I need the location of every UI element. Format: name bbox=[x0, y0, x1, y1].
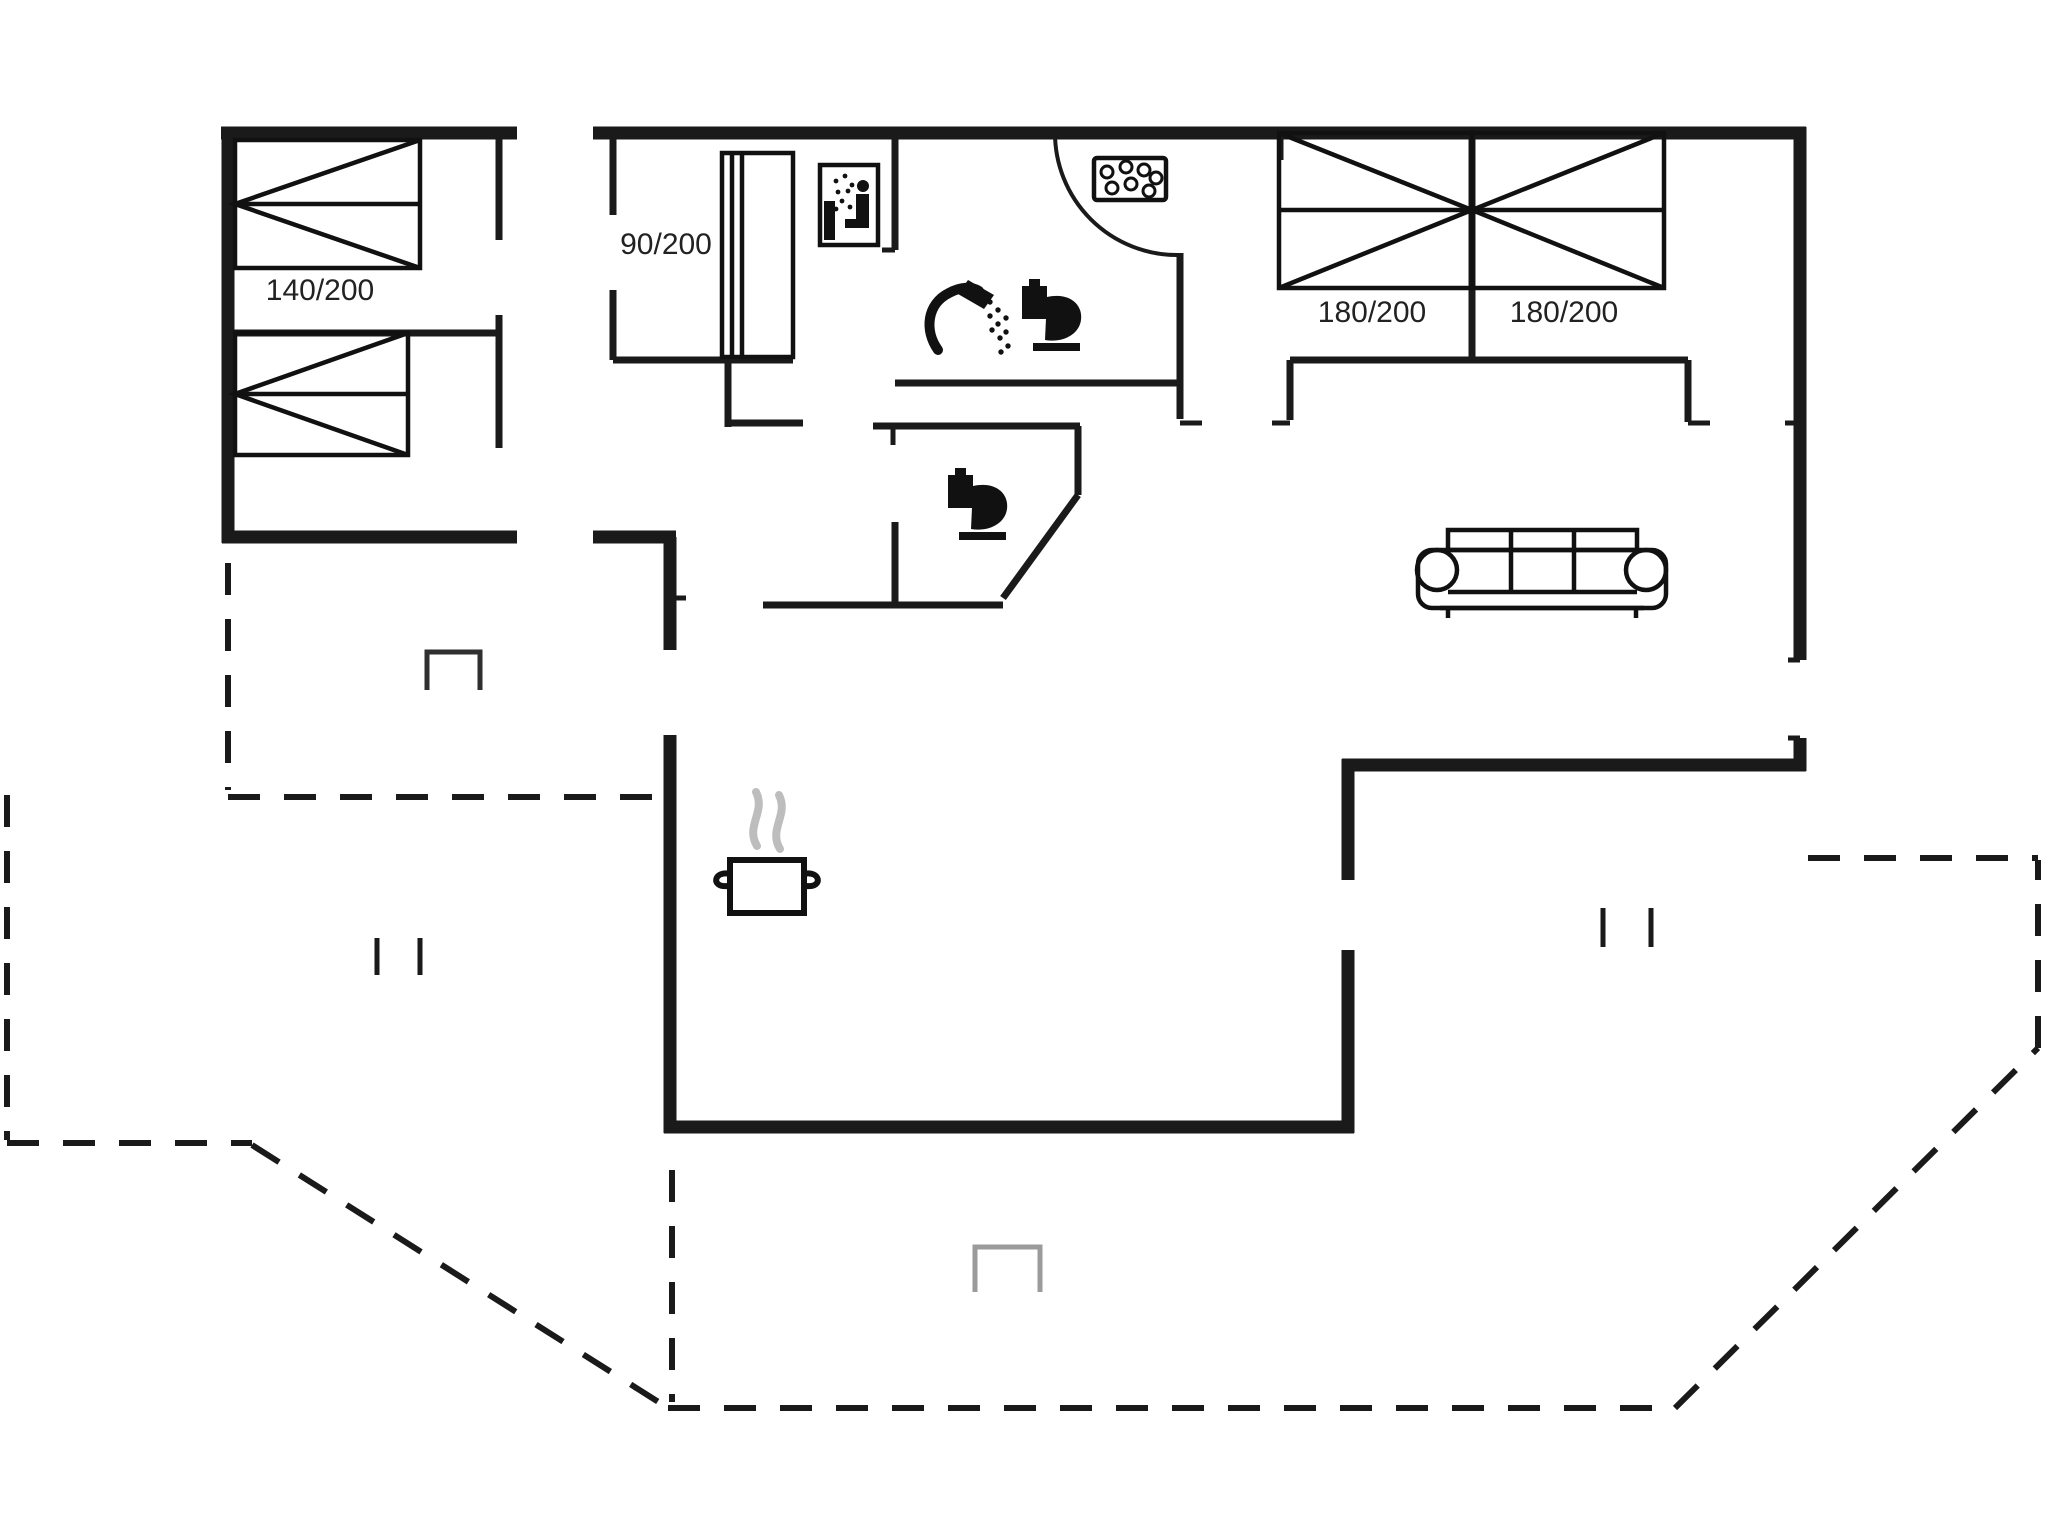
steam-icon bbox=[753, 792, 782, 849]
cooking-pot-icon bbox=[716, 860, 818, 913]
floor-plan-page: 140/200 90/200 180/200 180/200 bbox=[0, 0, 2048, 1536]
terrace-marker-left bbox=[427, 652, 480, 690]
terrace-marker-bottom bbox=[975, 1247, 1040, 1292]
sofa-icon bbox=[1417, 530, 1666, 618]
single-bed-icon bbox=[235, 333, 408, 455]
exterior-walls bbox=[221, 127, 1806, 1133]
double-bed-180x200-right-icon bbox=[1472, 133, 1664, 288]
interior-walls bbox=[228, 133, 1800, 738]
window-marker-right bbox=[1603, 908, 1651, 947]
floor-plan-drawing: 140/200 90/200 180/200 180/200 bbox=[0, 0, 2048, 1536]
terrace-dashed-outline bbox=[7, 563, 2038, 1408]
bed-90x200-icon bbox=[722, 153, 793, 357]
double-bed-140x200-icon bbox=[235, 140, 420, 268]
bed-size-labels: 140/200 90/200 180/200 180/200 bbox=[266, 228, 1618, 329]
toilet-icon-wc bbox=[948, 468, 1007, 540]
bed-label-180-200-right: 180/200 bbox=[1510, 296, 1618, 329]
shower-icon bbox=[929, 280, 1010, 355]
window-marker-left bbox=[377, 938, 420, 975]
double-bed-180x200-left-icon bbox=[1279, 133, 1472, 288]
sauna-icon bbox=[820, 165, 878, 245]
bed-label-140-200: 140/200 bbox=[266, 274, 374, 307]
toilet-icon-bathroom bbox=[1022, 279, 1081, 351]
whirlpool-icon bbox=[1094, 158, 1166, 200]
bed-label-180-200-left: 180/200 bbox=[1318, 296, 1426, 329]
bed-label-90-200: 90/200 bbox=[620, 228, 712, 261]
